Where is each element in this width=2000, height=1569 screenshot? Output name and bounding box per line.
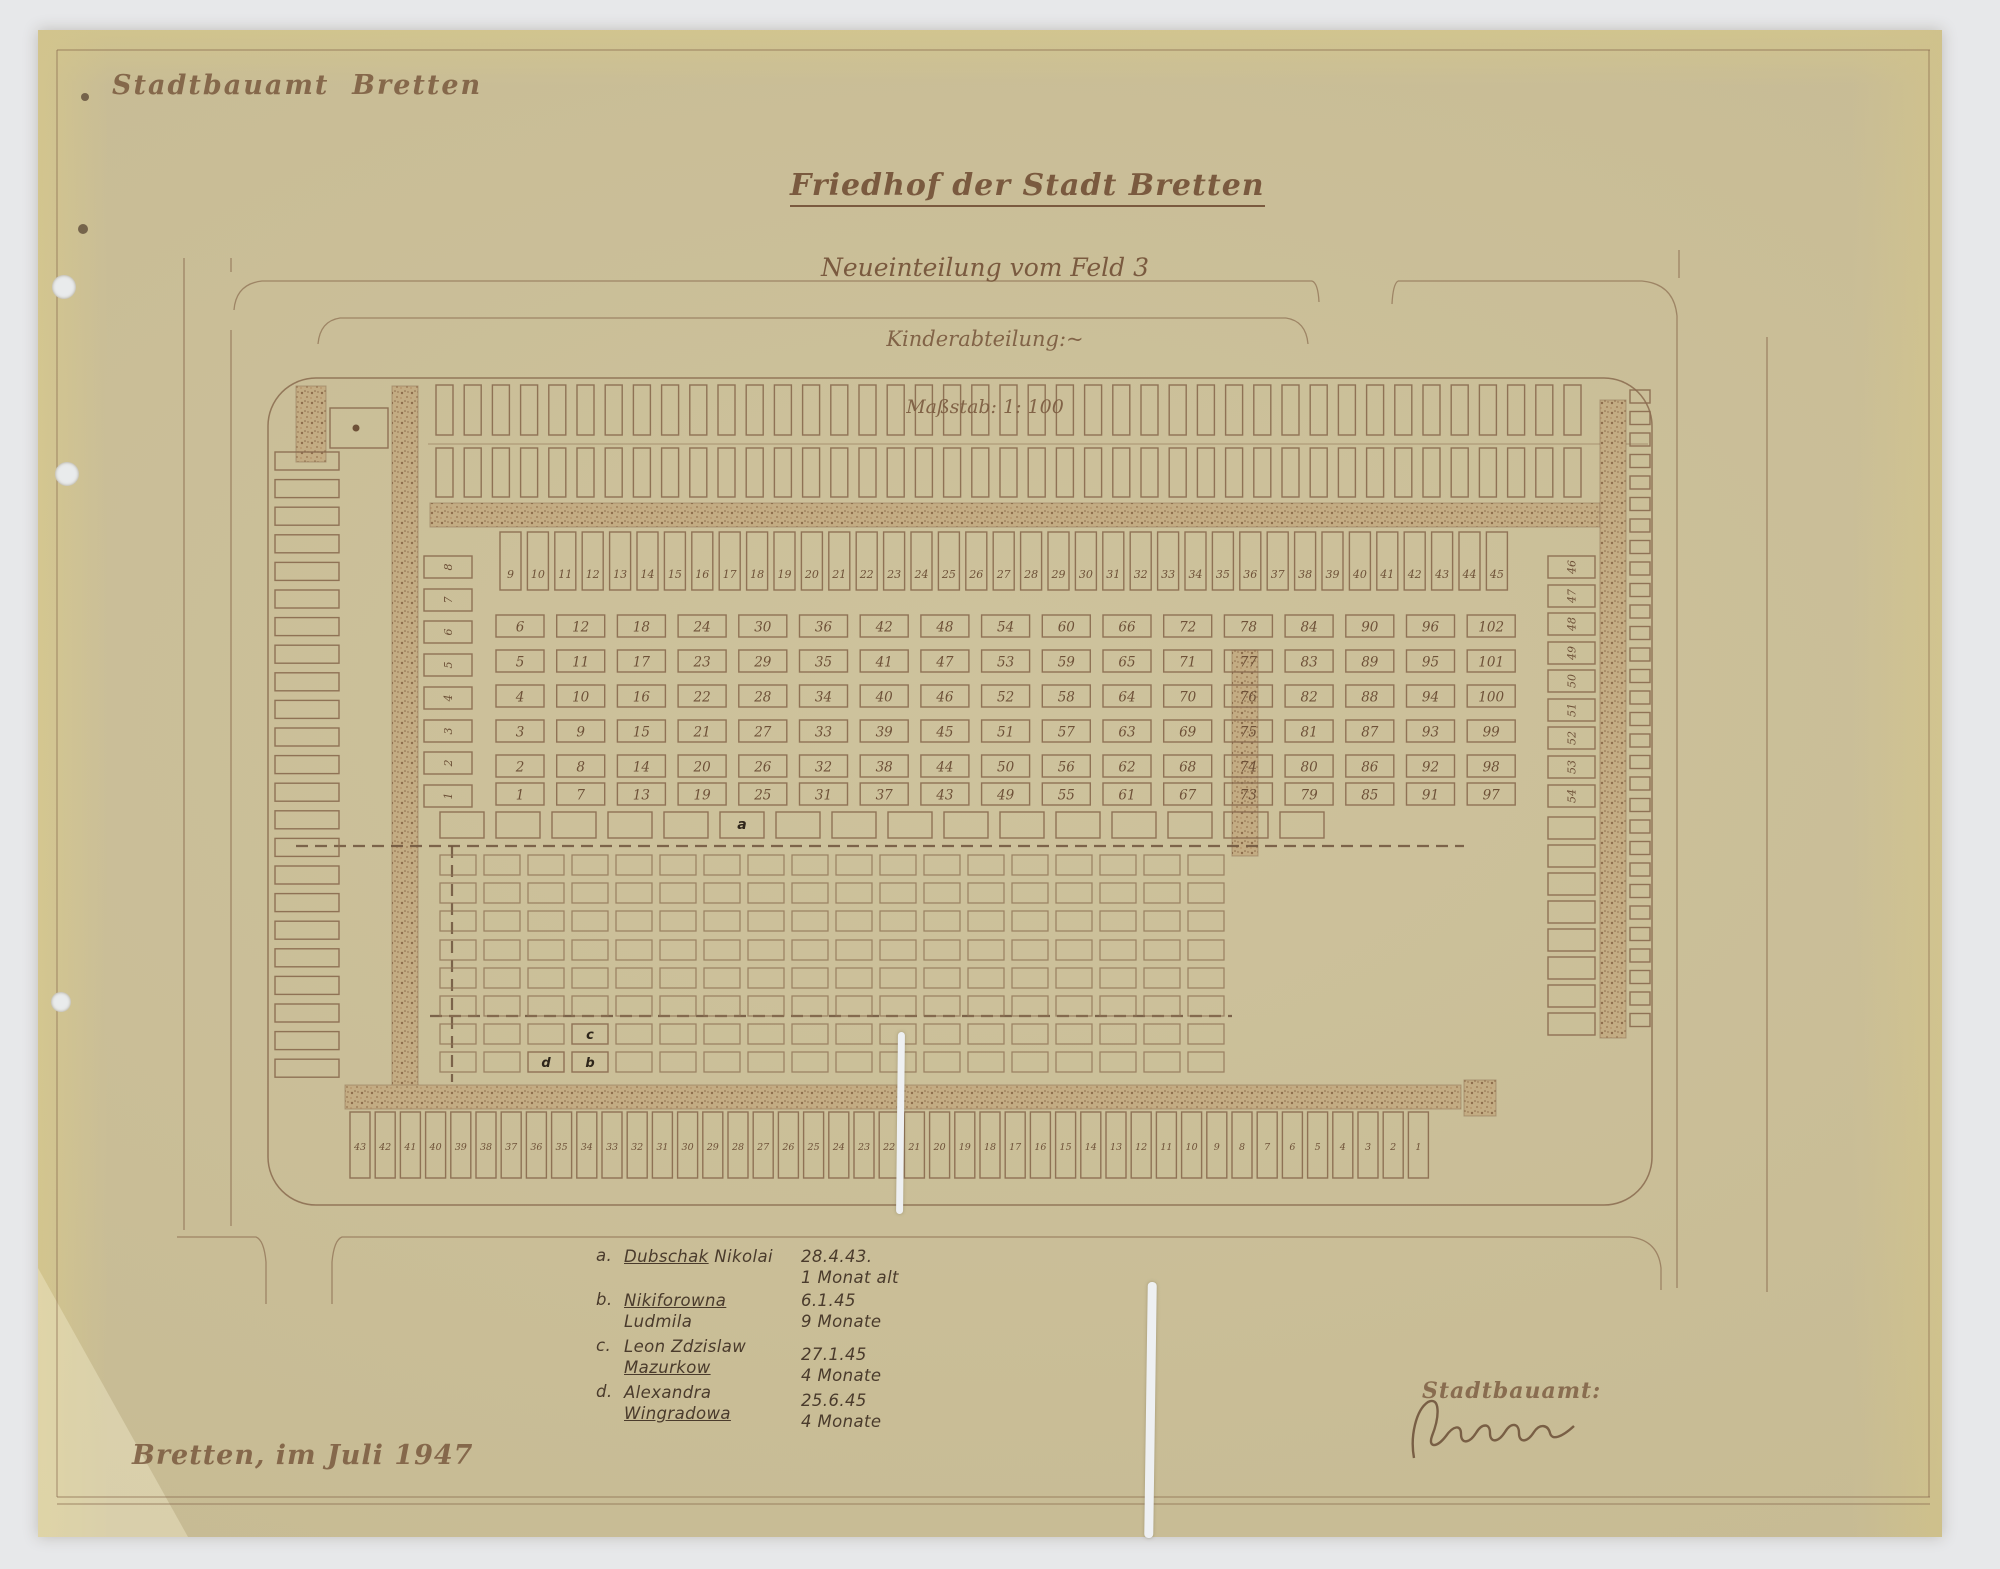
svg-text:5: 5 [1315, 1142, 1321, 1153]
svg-text:64: 64 [1118, 690, 1135, 706]
svg-text:57: 57 [1058, 725, 1076, 741]
svg-text:10: 10 [531, 568, 545, 581]
svg-text:37: 37 [876, 788, 894, 804]
svg-text:95: 95 [1422, 655, 1439, 671]
svg-text:38: 38 [1298, 568, 1312, 581]
svg-text:10: 10 [1186, 1142, 1198, 1153]
svg-text:1: 1 [516, 788, 525, 804]
numbered-grid: 6121824303642485460667278849096102511172… [496, 615, 1515, 805]
svg-text:7: 7 [1264, 1142, 1271, 1153]
svg-text:27: 27 [996, 568, 1011, 581]
svg-text:2: 2 [515, 760, 525, 776]
legend-name: Mazurkow [624, 1358, 711, 1377]
svg-text:71: 71 [1179, 655, 1196, 671]
far-right-column [1630, 390, 1650, 1027]
legend-key: c. [596, 1336, 611, 1355]
svg-text:15: 15 [668, 568, 682, 581]
ink-dot [81, 93, 89, 101]
svg-text:35: 35 [1216, 568, 1230, 581]
svg-text:23: 23 [857, 1142, 870, 1153]
svg-text:73: 73 [1240, 788, 1257, 804]
svg-text:47: 47 [1565, 589, 1578, 604]
svg-text:46: 46 [935, 690, 954, 706]
svg-text:55: 55 [1058, 788, 1075, 804]
svg-text:96: 96 [1422, 620, 1440, 636]
svg-text:97: 97 [1483, 788, 1501, 804]
svg-text:24: 24 [693, 620, 711, 636]
legend-name: Wingradowa [624, 1404, 731, 1423]
bottom-numbered-row: 4342414039383736353433323130292827262524… [350, 1112, 1428, 1178]
svg-text:24: 24 [832, 1142, 845, 1153]
legend-date: 25.6.45 [801, 1391, 867, 1410]
svg-text:100: 100 [1478, 690, 1504, 706]
svg-text:43: 43 [935, 788, 953, 804]
left-outer-column [275, 452, 339, 1077]
svg-text:81: 81 [1301, 725, 1318, 741]
svg-text:20: 20 [933, 1142, 946, 1153]
right-numbered-column: 464748495051525354 [1548, 556, 1595, 807]
svg-text:16: 16 [695, 568, 709, 581]
ink-dot [78, 224, 88, 234]
svg-text:31: 31 [656, 1142, 668, 1153]
svg-text:16: 16 [1034, 1142, 1046, 1153]
svg-text:92: 92 [1422, 760, 1439, 776]
svg-text:86: 86 [1361, 760, 1379, 776]
svg-text:30: 30 [682, 1142, 694, 1153]
svg-text:47: 47 [935, 655, 954, 671]
svg-text:67: 67 [1179, 788, 1197, 804]
svg-text:14: 14 [641, 568, 655, 581]
svg-text:39: 39 [876, 725, 894, 741]
svg-text:8: 8 [576, 760, 585, 776]
svg-text:8: 8 [1239, 1142, 1245, 1153]
svg-text:1: 1 [1415, 1142, 1421, 1153]
svg-text:42: 42 [378, 1142, 391, 1153]
svg-text:9: 9 [507, 568, 514, 581]
svg-text:29: 29 [706, 1142, 719, 1153]
office-header: Stadtbauamt Bretten [112, 70, 482, 101]
svg-text:76: 76 [1240, 690, 1258, 706]
legend-name: Ludmila [624, 1312, 692, 1331]
svg-text:87: 87 [1361, 725, 1379, 741]
svg-text:52: 52 [997, 690, 1014, 706]
legend-key: a. [596, 1246, 612, 1265]
entrance-gate [330, 408, 388, 448]
svg-text:28: 28 [1023, 568, 1038, 581]
svg-text:98: 98 [1483, 760, 1501, 776]
svg-text:101: 101 [1478, 655, 1504, 671]
svg-text:62: 62 [1118, 760, 1135, 776]
title-block: Friedhof der Stadt Bretten Neueinteilung… [790, 130, 1180, 456]
svg-text:88: 88 [1361, 690, 1379, 706]
legend-date: 28.4.43. [801, 1247, 872, 1266]
svg-text:33: 33 [1161, 568, 1175, 581]
legend-name: Alexandra [624, 1383, 711, 1402]
svg-text:42: 42 [875, 620, 893, 636]
legend-age: 1 Monat alt [801, 1268, 899, 1287]
svg-text:70: 70 [1179, 690, 1197, 706]
legend-key: b. [596, 1290, 613, 1309]
single-row-with-marker-a: a [440, 812, 1324, 838]
svg-text:6: 6 [442, 629, 455, 636]
svg-text:50: 50 [1565, 674, 1578, 688]
svg-text:99: 99 [1483, 725, 1501, 741]
svg-text:5: 5 [516, 655, 525, 671]
legend-date: 6.1.45 [801, 1291, 856, 1310]
svg-text:9: 9 [1214, 1142, 1220, 1153]
svg-text:43: 43 [1434, 568, 1449, 581]
legend-name: Nikolai [709, 1247, 773, 1266]
svg-text:25: 25 [753, 788, 771, 804]
svg-text:18: 18 [633, 620, 651, 636]
svg-text:59: 59 [1058, 655, 1076, 671]
svg-text:44: 44 [935, 760, 953, 776]
svg-text:17: 17 [633, 655, 651, 671]
svg-text:45: 45 [1489, 568, 1504, 581]
svg-text:46: 46 [1565, 560, 1578, 575]
svg-text:34: 34 [581, 1142, 593, 1153]
svg-text:2: 2 [1389, 1142, 1396, 1153]
svg-text:34: 34 [815, 690, 832, 706]
svg-text:41: 41 [875, 655, 893, 671]
svg-text:4: 4 [442, 695, 455, 703]
svg-text:14: 14 [633, 760, 650, 776]
svg-text:36: 36 [815, 620, 833, 636]
svg-text:6: 6 [1289, 1142, 1295, 1153]
svg-text:25: 25 [941, 568, 956, 581]
svg-text:6: 6 [516, 620, 525, 636]
punch-hole [52, 275, 76, 299]
svg-text:35: 35 [815, 655, 832, 671]
svg-text:80: 80 [1301, 760, 1319, 776]
svg-text:44: 44 [1462, 568, 1477, 581]
plan-scale: Maßstab: 1: 100 [790, 396, 1180, 418]
svg-text:77: 77 [1240, 655, 1258, 671]
svg-text:84: 84 [1301, 620, 1318, 636]
svg-text:26: 26 [753, 760, 772, 776]
svg-text:68: 68 [1179, 760, 1197, 776]
svg-text:18: 18 [984, 1142, 996, 1153]
svg-text:12: 12 [572, 620, 589, 636]
svg-text:32: 32 [1134, 568, 1148, 581]
place-date: Bretten, im Juli 1947 [132, 1440, 473, 1471]
legend-name: Nikiforowna [624, 1291, 726, 1310]
svg-text:26: 26 [781, 1142, 794, 1153]
left-numbered-column: 87654321 [424, 556, 472, 807]
svg-text:85: 85 [1361, 788, 1378, 804]
svg-text:1: 1 [442, 793, 455, 800]
svg-text:12: 12 [586, 568, 600, 581]
svg-text:48: 48 [935, 620, 954, 636]
svg-text:35: 35 [556, 1142, 568, 1153]
svg-text:36: 36 [1243, 568, 1257, 581]
svg-text:28: 28 [753, 690, 772, 706]
svg-text:48: 48 [1565, 617, 1578, 632]
svg-text:53: 53 [997, 655, 1014, 671]
svg-text:30: 30 [1079, 568, 1093, 581]
punch-hole [55, 462, 79, 486]
svg-text:53: 53 [1565, 760, 1578, 774]
svg-text:26: 26 [968, 568, 983, 581]
legend-date: 27.1.45 [801, 1345, 867, 1364]
svg-text:93: 93 [1422, 725, 1439, 741]
svg-text:13: 13 [613, 568, 627, 581]
svg-text:82: 82 [1301, 690, 1318, 706]
svg-text:94: 94 [1422, 690, 1439, 706]
svg-text:39: 39 [455, 1142, 467, 1153]
svg-text:54: 54 [1565, 789, 1578, 803]
svg-text:21: 21 [693, 725, 711, 741]
svg-text:19: 19 [959, 1142, 971, 1153]
svg-text:b: b [585, 1056, 594, 1071]
svg-text:65: 65 [1118, 655, 1135, 671]
signature-scribble [1413, 1401, 1574, 1458]
svg-text:66: 66 [1118, 620, 1136, 636]
svg-text:31: 31 [1106, 568, 1120, 581]
svg-text:60: 60 [1058, 620, 1076, 636]
svg-text:54: 54 [997, 620, 1014, 636]
svg-text:25: 25 [807, 1142, 820, 1153]
svg-text:3: 3 [516, 725, 525, 741]
svg-text:12: 12 [1135, 1142, 1147, 1153]
svg-text:11: 11 [1160, 1142, 1172, 1153]
legend-age: 4 Monate [801, 1366, 881, 1385]
svg-text:22: 22 [859, 568, 874, 581]
svg-text:32: 32 [815, 760, 832, 776]
svg-text:90: 90 [1361, 620, 1379, 636]
top-numbered-row: 9101112131415161718192021222324252627282… [500, 532, 1507, 590]
svg-text:83: 83 [1301, 655, 1318, 671]
legend-key: d. [596, 1382, 613, 1401]
svg-text:49: 49 [1565, 646, 1578, 661]
svg-text:11: 11 [558, 568, 572, 581]
svg-text:40: 40 [1352, 568, 1367, 581]
svg-text:4: 4 [1339, 1142, 1346, 1153]
svg-text:40: 40 [875, 690, 894, 706]
svg-text:56: 56 [1058, 760, 1076, 776]
svg-text:31: 31 [815, 788, 832, 804]
legend-name: Dubschak [624, 1247, 709, 1266]
svg-text:13: 13 [633, 788, 650, 804]
svg-text:30: 30 [754, 620, 772, 636]
svg-text:37: 37 [505, 1142, 518, 1153]
svg-text:17: 17 [1009, 1142, 1022, 1153]
svg-text:a: a [737, 817, 746, 833]
svg-text:23: 23 [886, 568, 901, 581]
svg-text:20: 20 [804, 568, 819, 581]
svg-text:23: 23 [693, 655, 711, 671]
svg-text:37: 37 [1271, 568, 1285, 581]
svg-text:69: 69 [1179, 725, 1197, 741]
dashed-boundaries [296, 846, 1464, 1082]
svg-text:42: 42 [1407, 568, 1422, 581]
svg-text:51: 51 [1565, 703, 1578, 717]
svg-text:75: 75 [1240, 725, 1257, 741]
right-extra-column [1548, 817, 1595, 1035]
svg-text:89: 89 [1361, 655, 1379, 671]
svg-text:7: 7 [442, 597, 455, 604]
svg-text:34: 34 [1189, 568, 1203, 581]
svg-text:28: 28 [731, 1142, 744, 1153]
svg-text:16: 16 [633, 690, 651, 706]
legend-name: Leon Zdzislaw [624, 1337, 746, 1356]
svg-text:8: 8 [442, 564, 455, 571]
svg-text:32: 32 [631, 1142, 643, 1153]
svg-text:5: 5 [442, 662, 455, 669]
svg-text:39: 39 [1326, 568, 1340, 581]
svg-text:2: 2 [442, 760, 455, 768]
svg-text:27: 27 [756, 1142, 770, 1153]
svg-text:40: 40 [429, 1142, 442, 1153]
svg-text:17: 17 [723, 568, 737, 581]
svg-text:51: 51 [997, 725, 1014, 741]
svg-text:102: 102 [1478, 620, 1504, 636]
plan-title: Friedhof der Stadt Bretten [790, 168, 1265, 207]
field-boundary [268, 378, 1652, 1205]
svg-text:21: 21 [907, 1142, 920, 1153]
signature-label: Stadtbauamt: [1422, 1378, 1601, 1404]
svg-text:19: 19 [694, 788, 712, 804]
svg-text:91: 91 [1422, 788, 1439, 804]
svg-text:7: 7 [576, 788, 585, 804]
svg-text:38: 38 [876, 760, 894, 776]
svg-text:18: 18 [750, 568, 764, 581]
plan-section-label: Kinderabteilung:~ [790, 327, 1180, 351]
svg-text:29: 29 [753, 655, 772, 671]
svg-text:15: 15 [1060, 1142, 1072, 1153]
svg-text:10: 10 [572, 690, 590, 706]
svg-text:4: 4 [515, 690, 525, 706]
svg-text:38: 38 [480, 1142, 492, 1153]
svg-text:14: 14 [1085, 1142, 1097, 1153]
svg-text:19: 19 [778, 568, 792, 581]
svg-text:36: 36 [530, 1142, 542, 1153]
svg-text:11: 11 [572, 655, 589, 671]
svg-text:9: 9 [576, 725, 585, 741]
svg-text:45: 45 [935, 725, 953, 741]
svg-text:13: 13 [1110, 1142, 1122, 1153]
svg-text:33: 33 [815, 725, 832, 741]
svg-text:41: 41 [1379, 568, 1394, 581]
plan-subtitle: Neueinteilung vom Feld 3 [790, 253, 1180, 282]
svg-text:22: 22 [693, 690, 711, 706]
svg-text:24: 24 [914, 568, 929, 581]
svg-text:3: 3 [442, 728, 455, 735]
svg-text:78: 78 [1240, 620, 1258, 636]
svg-text:50: 50 [997, 760, 1015, 776]
svg-text:49: 49 [996, 788, 1015, 804]
svg-text:74: 74 [1240, 760, 1257, 776]
svg-text:58: 58 [1058, 690, 1076, 706]
svg-text:79: 79 [1301, 788, 1319, 804]
svg-text:43: 43 [353, 1142, 366, 1153]
svg-text:27: 27 [753, 725, 772, 741]
svg-text:33: 33 [606, 1142, 618, 1153]
svg-text:52: 52 [1565, 731, 1578, 745]
svg-text:72: 72 [1179, 620, 1196, 636]
svg-text:d: d [541, 1056, 551, 1071]
svg-text:15: 15 [633, 725, 650, 741]
svg-text:c: c [586, 1028, 594, 1043]
svg-text:3: 3 [1365, 1142, 1371, 1153]
svg-text:29: 29 [1051, 568, 1066, 581]
svg-text:21: 21 [831, 568, 846, 581]
svg-text:22: 22 [882, 1142, 895, 1153]
punch-hole [51, 992, 71, 1012]
svg-text:61: 61 [1118, 788, 1135, 804]
legend-age: 4 Monate [801, 1412, 881, 1431]
scanned-sheet: 9101112131415161718192021222324252627282… [0, 0, 2000, 1569]
svg-text:41: 41 [403, 1142, 416, 1153]
svg-text:20: 20 [693, 760, 712, 776]
lower-grid: cdb [440, 855, 1224, 1072]
legend-age: 9 Monate [801, 1312, 881, 1331]
svg-text:63: 63 [1118, 725, 1135, 741]
